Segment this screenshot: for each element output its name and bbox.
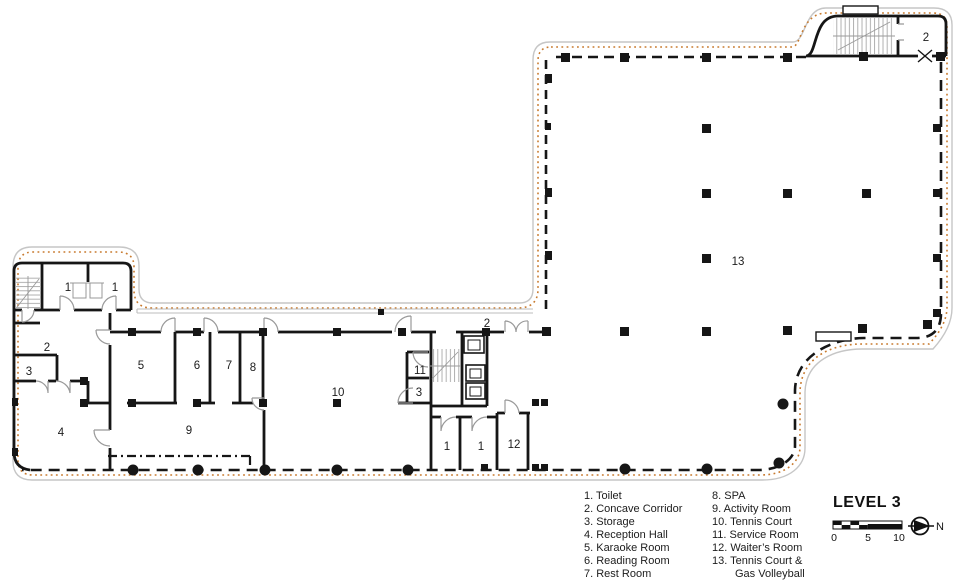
legend-item: 9. Activity Room bbox=[712, 503, 824, 516]
room-label-storage-b: 3 bbox=[416, 387, 422, 399]
building-outline bbox=[13, 8, 952, 480]
drawing-title: LEVEL 3 bbox=[833, 494, 901, 511]
scale-tick-10: 10 bbox=[893, 532, 905, 544]
room-label-service: 11 bbox=[414, 365, 426, 377]
scale-bar: 0 5 10 bbox=[831, 521, 905, 544]
legend: 1. Toilet2. Concave Corridor3. Storage4.… bbox=[584, 490, 824, 581]
room-label-karaoke: 5 bbox=[138, 360, 144, 372]
room-label-spa: 8 bbox=[250, 362, 256, 374]
room-label-corridor-b: 2 bbox=[484, 318, 490, 330]
north-label: N bbox=[936, 521, 944, 533]
room-label-storage-a: 3 bbox=[26, 366, 32, 378]
title-block: LEVEL 3 0 5 10 N bbox=[831, 494, 944, 544]
scale-tick-0: 0 bbox=[831, 532, 837, 544]
legend-item: 12. Waiter’s Room bbox=[712, 542, 824, 555]
room-label-rest: 7 bbox=[226, 360, 232, 372]
room-label-waiter: 12 bbox=[508, 439, 521, 451]
legend-item: 6. Reading Room bbox=[584, 555, 696, 568]
legend-item: 4. Reception Hall bbox=[584, 529, 696, 542]
room-label-reading: 6 bbox=[194, 360, 200, 372]
room-label-toilet-d: 1 bbox=[478, 441, 484, 453]
room-label-toilet-c: 1 bbox=[444, 441, 450, 453]
elevator-shafts bbox=[464, 336, 485, 399]
north-arrow-icon: N bbox=[908, 518, 944, 535]
legend-item: 1. Toilet bbox=[584, 490, 696, 503]
legend-item: 11. Service Room bbox=[712, 529, 824, 542]
room-label-toilet-a: 1 bbox=[65, 282, 71, 294]
legend-item: 2. Concave Corridor bbox=[584, 503, 696, 516]
room-label-corridor-c: 2 bbox=[923, 32, 929, 44]
legend-column-1: 1. Toilet2. Concave Corridor3. Storage4.… bbox=[584, 490, 696, 581]
legend-item: 5. Karaoke Room bbox=[584, 542, 696, 555]
legend-item: 10. Tennis Court bbox=[712, 516, 824, 529]
room-label-corridor-a: 2 bbox=[44, 342, 50, 354]
legend-item: 8. SPA bbox=[712, 490, 824, 503]
room-label-activity: 9 bbox=[186, 425, 192, 437]
legend-item: 7. Rest Room bbox=[584, 568, 696, 581]
room-label-reception: 4 bbox=[58, 427, 65, 439]
legend-item: 3. Storage bbox=[584, 516, 696, 529]
floorplan-page: 1 1 2 3 4 5 6 7 8 9 10 11 3 2 1 1 12 13 … bbox=[0, 0, 960, 587]
legend-column-2: 8. SPA9. Activity Room10. Tennis Court11… bbox=[712, 490, 824, 581]
legend-item: 13. Tennis Court & bbox=[712, 555, 824, 568]
room-label-tennis-volleyball: 13 bbox=[732, 256, 745, 268]
legend-item: Gas Volleyball bbox=[712, 568, 824, 581]
room-label-tennis: 10 bbox=[332, 387, 345, 399]
scale-tick-5: 5 bbox=[865, 532, 871, 544]
room-label-toilet-b: 1 bbox=[112, 282, 118, 294]
